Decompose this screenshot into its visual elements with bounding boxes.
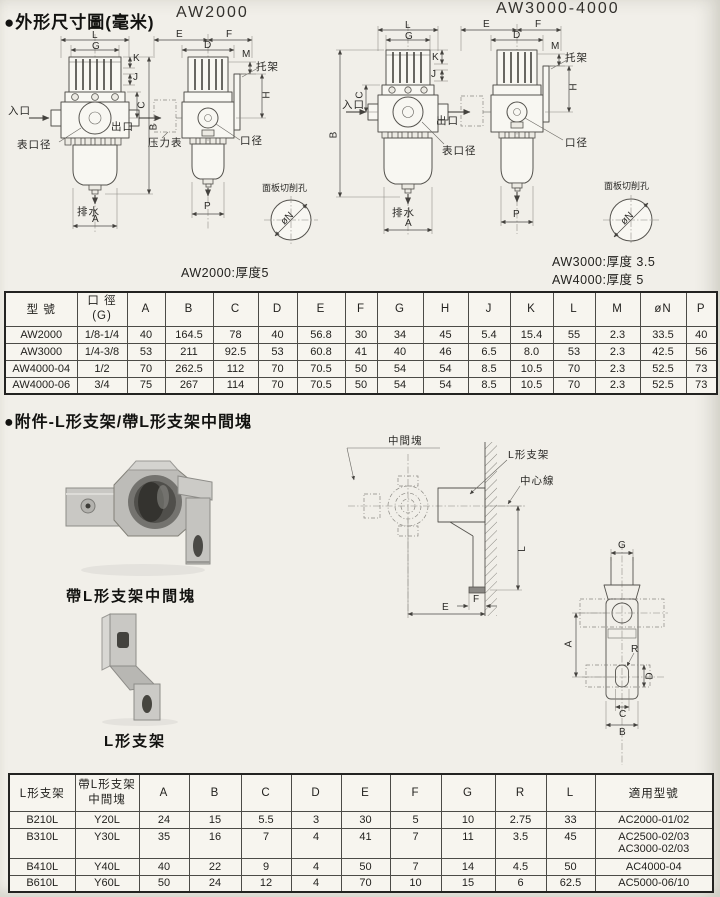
dim-label-M: M bbox=[242, 50, 250, 60]
block-name: Y60L bbox=[75, 875, 139, 892]
cell: 41 bbox=[345, 343, 377, 360]
table-row: B310L Y30L 3516 74 417 113.5 45 AC2500-0… bbox=[9, 828, 713, 858]
bracket-label: 托架 bbox=[256, 62, 279, 73]
bracket-front-diagram: G A R D C B bbox=[552, 535, 720, 770]
cell: 12 bbox=[241, 875, 291, 892]
col-L: L bbox=[546, 774, 595, 811]
bracket-table: L形支架 帶L形支架中間塊 A B C D E F G R L 適用型號 B21… bbox=[8, 773, 714, 893]
cell: 62.5 bbox=[546, 875, 595, 892]
cell: 54 bbox=[377, 360, 423, 377]
col-l-bracket: L形支架 bbox=[9, 774, 75, 811]
table-row: B410L Y40L 4022 94 507 144.5 50 AC4000-0… bbox=[9, 858, 713, 875]
cell: 114 bbox=[213, 377, 258, 394]
cell: 40 bbox=[127, 326, 165, 343]
cell: 262.5 bbox=[165, 360, 213, 377]
cell: 11 bbox=[441, 828, 495, 858]
cell: 6.5 bbox=[468, 343, 510, 360]
cell: 2.3 bbox=[595, 360, 640, 377]
cell: 34 bbox=[377, 326, 423, 343]
inlet-label: 入口 bbox=[8, 106, 31, 117]
dim-label-P: P bbox=[204, 202, 211, 212]
cell: 10.5 bbox=[510, 377, 553, 394]
dim-label-L: L bbox=[92, 31, 98, 41]
cell: 4.5 bbox=[495, 858, 546, 875]
cell: 14 bbox=[441, 858, 495, 875]
cell: 7 bbox=[390, 858, 441, 875]
dim-label-P: P bbox=[513, 210, 520, 220]
table-row: B210L Y20L 2415 5.53 305 102.75 33 AC200… bbox=[9, 811, 713, 828]
dim-label-F: F bbox=[226, 30, 232, 40]
photo-l-bracket bbox=[90, 610, 190, 725]
cell: 211 bbox=[165, 343, 213, 360]
cell: 16 bbox=[189, 828, 241, 858]
port-label: 口径 bbox=[240, 136, 263, 147]
cell: 40 bbox=[377, 343, 423, 360]
dim-label-A: A bbox=[92, 215, 99, 225]
dim-label-L: L bbox=[518, 546, 528, 552]
model-name: AW3000 bbox=[5, 343, 77, 360]
col-B: B bbox=[165, 292, 213, 326]
inlet-label: 入口 bbox=[342, 100, 365, 111]
drain-label: 排水 bbox=[392, 208, 415, 219]
dim-label-E: E bbox=[176, 30, 183, 40]
aw3000-side-view: E F D M 托架 H 口径 P bbox=[455, 20, 590, 238]
section2-title: ●附件-L形支架/帶L形支架中間塊 bbox=[4, 408, 252, 432]
cell: 9 bbox=[241, 858, 291, 875]
cell: 78 bbox=[213, 326, 258, 343]
dim-label-F: F bbox=[473, 595, 479, 605]
col-B: B bbox=[189, 774, 241, 811]
cell: 10 bbox=[390, 875, 441, 892]
cell: 22 bbox=[189, 858, 241, 875]
cell: 2.3 bbox=[595, 377, 640, 394]
dim-label-E: E bbox=[442, 603, 449, 613]
cell: 53 bbox=[553, 343, 595, 360]
outlet-label: 出口 bbox=[111, 122, 134, 133]
col-J: J bbox=[468, 292, 510, 326]
cell: 3 bbox=[291, 811, 341, 828]
dim-label-F: F bbox=[535, 20, 541, 30]
cell: 40 bbox=[258, 326, 297, 343]
cell: 5.5 bbox=[241, 811, 291, 828]
dim-label-C: C bbox=[356, 91, 366, 98]
cell: 35 bbox=[139, 828, 189, 858]
dim-label-M: M bbox=[551, 42, 559, 52]
aw2000-front-drawing bbox=[25, 30, 165, 235]
cell: 3/4 bbox=[77, 377, 127, 394]
dim-label-R: R bbox=[631, 645, 638, 655]
col-E: E bbox=[297, 292, 345, 326]
dim-label-H: H bbox=[263, 91, 273, 98]
dim-label-J: J bbox=[133, 73, 138, 83]
cell: 4 bbox=[291, 858, 341, 875]
cell: 70 bbox=[341, 875, 390, 892]
l-bracket-label: L形支架 bbox=[508, 450, 549, 461]
caption-block-with-bracket: 帶L形支架中間塊 bbox=[66, 585, 196, 606]
cell: 4 bbox=[291, 828, 341, 858]
applicable-models-cell: AC4000-04 bbox=[595, 858, 713, 875]
cell: 164.5 bbox=[165, 326, 213, 343]
dim-label-K: K bbox=[432, 53, 439, 63]
table-row: B610L Y60L 5024 124 7010 156 62.5 AC5000… bbox=[9, 875, 713, 892]
caption-l-bracket: L形支架 bbox=[104, 730, 166, 751]
col-C: C bbox=[213, 292, 258, 326]
dim-label-G: G bbox=[618, 541, 626, 551]
cell: 3.5 bbox=[495, 828, 546, 858]
applicable-models-cell: AC2000-01/02 bbox=[595, 811, 713, 828]
cell: 70 bbox=[127, 360, 165, 377]
model-name: AW4000-06 bbox=[5, 377, 77, 394]
bracket-name: B310L bbox=[9, 828, 75, 858]
photo-block-with-bracket bbox=[58, 440, 213, 580]
table-row: AW4000-06 3/4 75267 11470 70.550 5454 8.… bbox=[5, 377, 717, 394]
cell: 1/4-3/8 bbox=[77, 343, 127, 360]
col-F: F bbox=[345, 292, 377, 326]
table-row: AW3000 1/4-3/8 53211 92.553 60.841 4046 … bbox=[5, 343, 717, 360]
cell: 1/8-1/4 bbox=[77, 326, 127, 343]
aw2000-front-view: L G K J C B 入口 出口 表口径 排水 A bbox=[25, 30, 165, 235]
gauge-port-label: 表口径 bbox=[17, 140, 52, 151]
cell: 70.5 bbox=[297, 360, 345, 377]
cell: 10 bbox=[441, 811, 495, 828]
bracket-name: B410L bbox=[9, 858, 75, 875]
cell: 2.3 bbox=[595, 343, 640, 360]
dim-label-C: C bbox=[138, 101, 148, 108]
dim-label-A: A bbox=[405, 219, 412, 229]
cell: 24 bbox=[139, 811, 189, 828]
dim-label-D: D bbox=[204, 41, 211, 51]
bracket-name: B610L bbox=[9, 875, 75, 892]
l-bracket-photo bbox=[90, 610, 190, 725]
table-row: AW4000-04 1/2 70262.5 11270 70.550 5454 … bbox=[5, 360, 717, 377]
cell: 7 bbox=[390, 828, 441, 858]
cell: 41 bbox=[341, 828, 390, 858]
cell: 15.4 bbox=[510, 326, 553, 343]
cell: 6 bbox=[495, 875, 546, 892]
cell: 1/2 bbox=[77, 360, 127, 377]
cell: 45 bbox=[423, 326, 468, 343]
applicable-models-cell: AC5000-06/10 bbox=[595, 875, 713, 892]
col-model: 型 號 bbox=[5, 292, 77, 326]
table-row: AW2000 1/8-1/4 40164.5 7840 56.830 3445 … bbox=[5, 326, 717, 343]
dim-label-C: C bbox=[619, 710, 626, 720]
cell: 56 bbox=[686, 343, 717, 360]
bracket-name: B210L bbox=[9, 811, 75, 828]
cell: 10.5 bbox=[510, 360, 553, 377]
col-port: 口 徑(G) bbox=[77, 292, 127, 326]
col-A: A bbox=[139, 774, 189, 811]
col-K: K bbox=[510, 292, 553, 326]
col-G: G bbox=[441, 774, 495, 811]
table1-header-row: 型 號 口 徑(G) A B C D E F G H J K L M øN P bbox=[5, 292, 717, 326]
col-L: L bbox=[553, 292, 595, 326]
aw3000-thickness-note: AW3000:厚度 3.5 bbox=[552, 251, 655, 270]
cell: 55 bbox=[553, 326, 595, 343]
cell: 46 bbox=[423, 343, 468, 360]
cell: 52.5 bbox=[640, 360, 686, 377]
cell: 7 bbox=[241, 828, 291, 858]
dim-label-G: G bbox=[405, 32, 413, 42]
col-P: P bbox=[686, 292, 717, 326]
dim-label-D: D bbox=[513, 31, 520, 41]
col-D: D bbox=[258, 292, 297, 326]
cell: 267 bbox=[165, 377, 213, 394]
block-name: Y20L bbox=[75, 811, 139, 828]
aw2000-panel-cutout: 面板切削孔 øN bbox=[252, 184, 332, 246]
cell: 45 bbox=[546, 828, 595, 858]
aw4000-thickness-note: AW4000:厚度 5 bbox=[552, 269, 644, 288]
cell: 73 bbox=[686, 360, 717, 377]
port-label: 口径 bbox=[565, 138, 588, 149]
catalog-page: ●外形尺寸圖(毫米) AW2000 AW3000-4000 bbox=[0, 0, 720, 897]
block-name: Y30L bbox=[75, 828, 139, 858]
col-R: R bbox=[495, 774, 546, 811]
cell: 8.0 bbox=[510, 343, 553, 360]
col-C: C bbox=[241, 774, 291, 811]
applicable-models-cell: AC2500-02/03AC3000-02/03 bbox=[595, 828, 713, 858]
aw3000-panel-cutout: 面板切削孔 øN bbox=[592, 182, 672, 248]
dim-label-L: L bbox=[405, 21, 411, 31]
cell: 2.3 bbox=[595, 326, 640, 343]
cell: 5 bbox=[390, 811, 441, 828]
cell: 4 bbox=[291, 875, 341, 892]
cell: 70.5 bbox=[297, 377, 345, 394]
bracket-label: 托架 bbox=[565, 53, 588, 64]
dim-label-A: A bbox=[564, 641, 574, 648]
cell: 15 bbox=[441, 875, 495, 892]
aw3000-title: AW3000-4000 bbox=[496, 0, 620, 18]
cell: 53 bbox=[258, 343, 297, 360]
col-G: G bbox=[377, 292, 423, 326]
dim-label-J: J bbox=[431, 70, 436, 80]
model-name: AW2000 bbox=[5, 326, 77, 343]
cell: 54 bbox=[377, 377, 423, 394]
cell: 50 bbox=[345, 377, 377, 394]
pressure-gauge-label: 压力表 bbox=[148, 138, 183, 149]
cell: 40 bbox=[139, 858, 189, 875]
aw2000-title: AW2000 bbox=[176, 4, 249, 22]
center-line-label: 中心線 bbox=[520, 476, 555, 487]
col-F: F bbox=[390, 774, 441, 811]
cell: 54 bbox=[423, 377, 468, 394]
cell: 70 bbox=[553, 360, 595, 377]
col-A: A bbox=[127, 292, 165, 326]
cell: 73 bbox=[686, 377, 717, 394]
panel-hole-label: 面板切削孔 bbox=[604, 182, 649, 191]
cell: 15 bbox=[189, 811, 241, 828]
dim-label-H: H bbox=[570, 83, 580, 90]
col-D: D bbox=[291, 774, 341, 811]
cell: 42.5 bbox=[640, 343, 686, 360]
dim-label-B: B bbox=[329, 132, 339, 139]
cell: 92.5 bbox=[213, 343, 258, 360]
dim-label-D: D bbox=[646, 672, 656, 679]
panel-hole-label: 面板切削孔 bbox=[262, 184, 307, 193]
cell: 60.8 bbox=[297, 343, 345, 360]
col-E: E bbox=[341, 774, 390, 811]
cell: 24 bbox=[189, 875, 241, 892]
col-block: 帶L形支架中間塊 bbox=[75, 774, 139, 811]
block-bracket-photo bbox=[58, 440, 213, 580]
cell: 33 bbox=[546, 811, 595, 828]
cell: 50 bbox=[139, 875, 189, 892]
cell: 40 bbox=[686, 326, 717, 343]
cell: 5.4 bbox=[468, 326, 510, 343]
col-N: øN bbox=[640, 292, 686, 326]
dim-label-G: G bbox=[92, 42, 100, 52]
cell: 33.5 bbox=[640, 326, 686, 343]
cell: 75 bbox=[127, 377, 165, 394]
cell: 70 bbox=[258, 360, 297, 377]
dim-label-K: K bbox=[133, 54, 140, 64]
cell: 112 bbox=[213, 360, 258, 377]
col-H: H bbox=[423, 292, 468, 326]
table2-header-row: L形支架 帶L形支架中間塊 A B C D E F G R L 適用型號 bbox=[9, 774, 713, 811]
cell: 8.5 bbox=[468, 360, 510, 377]
col-M: M bbox=[595, 292, 640, 326]
cell: 2.75 bbox=[495, 811, 546, 828]
middle-block-label: 中間塊 bbox=[388, 436, 423, 447]
cell: 8.5 bbox=[468, 377, 510, 394]
aw2000-thickness-note: AW2000:厚度5 bbox=[181, 262, 269, 281]
cell: 70 bbox=[258, 377, 297, 394]
bracket-mount-side-diagram: 中間塊 L形支架 中心線 L F E bbox=[340, 424, 570, 624]
cell: 30 bbox=[341, 811, 390, 828]
block-name: Y40L bbox=[75, 858, 139, 875]
dim-label-B: B bbox=[619, 728, 626, 738]
cell: 54 bbox=[423, 360, 468, 377]
model-name: AW4000-04 bbox=[5, 360, 77, 377]
cell: 50 bbox=[341, 858, 390, 875]
cell: 70 bbox=[553, 377, 595, 394]
col-applicable-models: 適用型號 bbox=[595, 774, 713, 811]
cell: 53 bbox=[127, 343, 165, 360]
cell: 56.8 bbox=[297, 326, 345, 343]
dimension-table: 型 號 口 徑(G) A B C D E F G H J K L M øN P … bbox=[4, 291, 718, 395]
cell: 52.5 bbox=[640, 377, 686, 394]
cell: 30 bbox=[345, 326, 377, 343]
cell: 50 bbox=[546, 858, 595, 875]
cell: 50 bbox=[345, 360, 377, 377]
dim-label-E: E bbox=[483, 20, 490, 30]
